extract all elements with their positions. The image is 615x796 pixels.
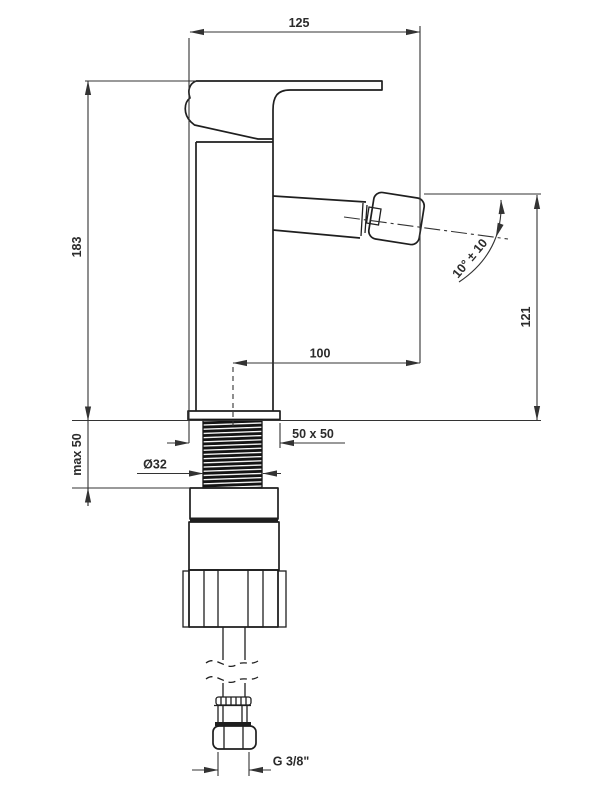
mounting-body (189, 522, 279, 570)
extension-lines (72, 26, 541, 776)
dim-g38-label: G 3/8" (273, 755, 310, 769)
dim-d32-label: Ø32 (143, 458, 167, 472)
faucet-body (196, 139, 273, 411)
dim-50x50-label: 50 x 50 (292, 427, 334, 441)
faucet-outline (183, 81, 425, 749)
faucet-lever (185, 81, 382, 139)
dim-100-label: 100 (310, 347, 331, 361)
dim-125-label: 125 (289, 16, 310, 30)
aerator (368, 191, 426, 245)
drawing-canvas: 125 183 max 50 Ø32 50 x 50 100 121 10° ±… (0, 0, 615, 796)
hose-connector (213, 697, 256, 749)
hose-break-marks (206, 661, 258, 683)
dimension-lines (88, 32, 537, 770)
spacer-washer (190, 488, 278, 519)
mounting-nut (183, 570, 286, 627)
connector-sleeve (214, 705, 251, 722)
dim-121-label: 121 (519, 307, 533, 328)
mounting-shank-thread (203, 420, 262, 488)
connector-collar-hatch (221, 697, 246, 705)
dim-183-label: 183 (70, 237, 84, 258)
dimension-labels: 125 183 max 50 Ø32 50 x 50 100 121 10° ±… (70, 16, 533, 769)
supply-hose (223, 627, 245, 697)
spout-tube (273, 196, 366, 238)
dim-max50-label: max 50 (70, 433, 84, 475)
connector-hex-nut (213, 726, 256, 749)
connector-hex-facets (224, 726, 243, 749)
technical-drawing-page: 125 183 max 50 Ø32 50 x 50 100 121 10° ±… (0, 0, 615, 796)
base-flange (188, 411, 280, 420)
angle-arc (496, 200, 501, 237)
